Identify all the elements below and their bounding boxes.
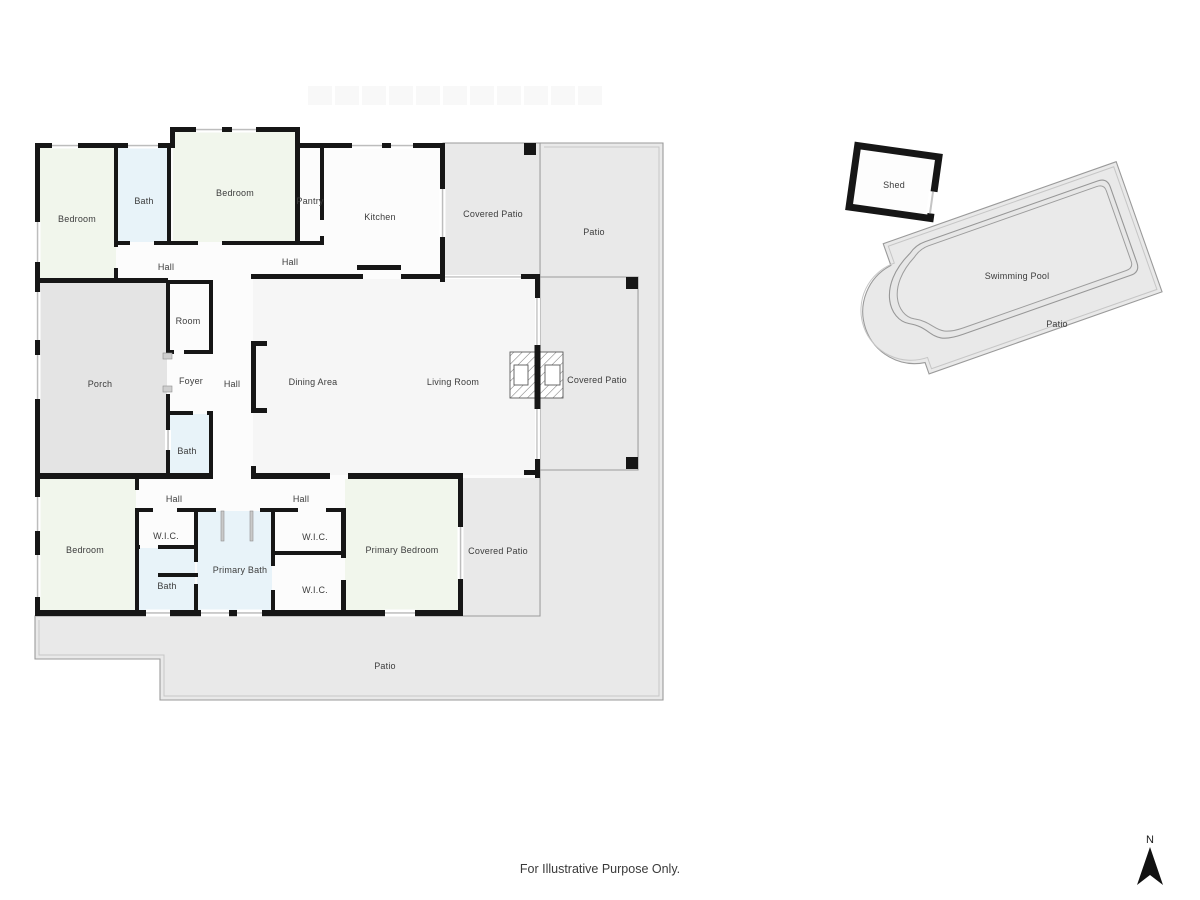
room-label-bedroom-bl: Bedroom <box>66 545 104 555</box>
floor-plan-canvas: Bedroom Bath Bedroom Pantry Kitchen Cove… <box>0 0 1200 900</box>
room-label-wic-left: W.I.C. <box>153 531 179 541</box>
room-label-patio-top: Patio <box>583 227 605 237</box>
north-arrow-icon: N <box>1137 834 1163 885</box>
room-label-swimming-pool: Swimming Pool <box>985 271 1050 281</box>
room-label-covered-patio-right: Covered Patio <box>567 375 627 385</box>
north-label: N <box>1146 834 1154 846</box>
room-label-pantry: Pantry <box>296 196 324 206</box>
floor-plan-page: Bedroom Bath Bedroom Pantry Kitchen Cove… <box>0 0 1200 900</box>
room-label-living: Living Room <box>427 377 479 387</box>
room-label-bath-tl: Bath <box>134 196 153 206</box>
room-label-hall-1: Hall <box>158 262 174 272</box>
room-label-bath-mid: Bath <box>177 446 196 456</box>
room-label-hall-2: Hall <box>282 257 298 267</box>
room-label-covered-patio-bottom: Covered Patio <box>468 546 528 556</box>
room-label-bedroom-tl: Bedroom <box>58 214 96 224</box>
room-label-kitchen: Kitchen <box>364 212 395 222</box>
room-label-hall-3: Hall <box>224 379 240 389</box>
illustrative-note: For Illustrative Purpose Only. <box>520 862 680 876</box>
room-label-pool-patio: Patio <box>1046 319 1068 329</box>
room-label-shed: Shed <box>883 180 905 190</box>
room-label-dining: Dining Area <box>289 377 338 387</box>
room-label-wic-top: W.I.C. <box>302 532 328 542</box>
watermark-band <box>308 86 602 105</box>
room-label-bedroom-top: Bedroom <box>216 188 254 198</box>
room-label-bath-bl: Bath <box>157 581 176 591</box>
room-label-room: Room <box>176 316 201 326</box>
room-label-porch: Porch <box>88 379 113 389</box>
room-label-patio-bottom: Patio <box>374 661 396 671</box>
room-label-covered-patio-top: Covered Patio <box>463 209 523 219</box>
room-label-primary-bedroom: Primary Bedroom <box>365 545 438 555</box>
room-label-hall-5: Hall <box>293 494 309 504</box>
room-label-foyer: Foyer <box>179 376 203 386</box>
room-label-primary-bath: Primary Bath <box>213 565 267 575</box>
room-label-hall-4: Hall <box>166 494 182 504</box>
room-label-wic-bottom: W.I.C. <box>302 585 328 595</box>
